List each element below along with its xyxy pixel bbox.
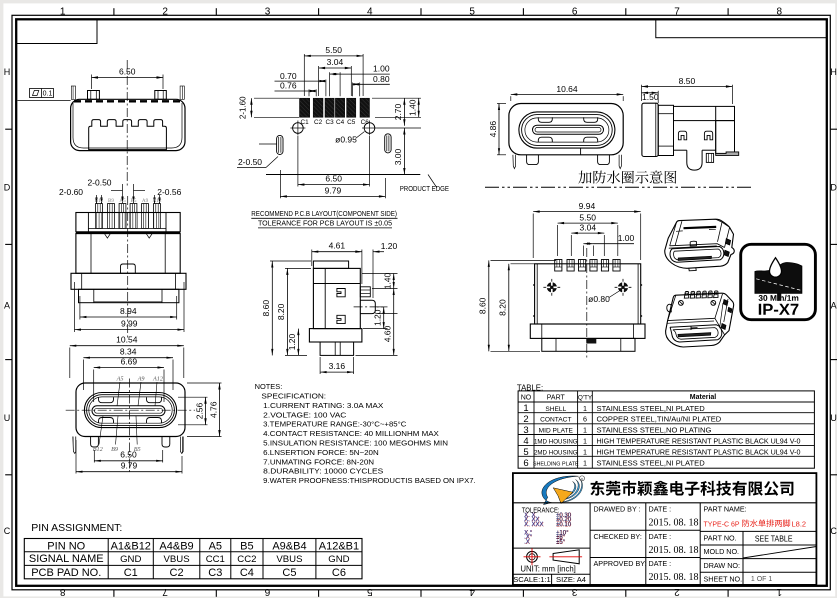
svg-text:Material: Material (690, 394, 717, 401)
svg-text:9.94: 9.94 (579, 201, 596, 211)
svg-text:GND: GND (328, 554, 349, 565)
svg-text:8.20: 8.20 (498, 299, 508, 316)
svg-text:1.CURRENT RATING: 3.0A MAX: 1.CURRENT RATING: 3.0A MAX (263, 403, 384, 410)
svg-text:5.50: 5.50 (325, 45, 342, 55)
svg-text:2-0.50: 2-0.50 (238, 157, 262, 167)
svg-text:2-0.60: 2-0.60 (59, 187, 83, 197)
svg-text:A12: A12 (153, 198, 162, 204)
svg-text:SHEET NO.: SHEET NO. (704, 574, 743, 583)
svg-text:2.56: 2.56 (195, 402, 205, 419)
svg-text:4.76: 4.76 (209, 401, 219, 418)
svg-text:9.WATER PROOFNESS:THISPRODUCTI: 9.WATER PROOFNESS:THISPRODUCTIS BASED ON… (263, 478, 476, 485)
svg-text:A5: A5 (209, 540, 222, 552)
svg-text:1 OF 1: 1 OF 1 (751, 576, 773, 583)
svg-text:1.50: 1.50 (642, 92, 659, 102)
svg-text:H: H (4, 67, 11, 77)
svg-text:3: 3 (523, 425, 528, 436)
svg-text:2MD HOUSING: 2MD HOUSING (534, 449, 578, 456)
svg-text:DRAW NO:: DRAW NO: (704, 561, 740, 570)
svg-text:8.50: 8.50 (679, 76, 696, 86)
svg-text:SHELL: SHELL (545, 406, 566, 413)
svg-text:2: 2 (523, 414, 528, 425)
svg-text:APPROVED BY:: APPROVED BY: (594, 559, 647, 568)
svg-text:HIGH TEMPERATURE RESISTANT: HIGH TEMPERATURE RESISTANT PLASTIC BLACK… (597, 436, 801, 445)
svg-text:PART: PART (547, 394, 566, 401)
svg-text:4.86: 4.86 (488, 121, 498, 138)
svg-text:VBUS: VBUS (163, 554, 189, 565)
svg-text:SIGNAL NAME: SIGNAL NAME (29, 553, 104, 565)
svg-text:DATE :: DATE : (649, 559, 672, 568)
svg-text:CONTACT: CONTACT (540, 417, 571, 424)
svg-text:6: 6 (523, 458, 528, 469)
svg-text:B5: B5 (240, 540, 253, 552)
svg-text:C5: C5 (282, 567, 296, 579)
svg-text:C: C (4, 526, 11, 536)
svg-text:8.60: 8.60 (261, 300, 271, 317)
svg-text:2015. 08. 18: 2015. 08. 18 (649, 545, 699, 556)
svg-text:PRODUCT EDGE: PRODUCT EDGE (400, 184, 449, 193)
svg-text:1.00: 1.00 (618, 233, 635, 243)
svg-text:4: 4 (469, 586, 475, 597)
svg-text:PCB PAD NO.: PCB PAD NO. (31, 567, 101, 579)
svg-text:1.40: 1.40 (383, 272, 393, 289)
svg-text:3: 3 (265, 7, 271, 18)
svg-text:8.94: 8.94 (120, 306, 137, 316)
svg-text:10.64: 10.64 (556, 84, 578, 94)
svg-text:D: D (4, 183, 11, 193)
svg-text:A9: A9 (137, 376, 145, 383)
svg-text:1: 1 (523, 403, 528, 414)
svg-text:B5: B5 (130, 198, 136, 204)
svg-text:CC2: CC2 (237, 554, 256, 565)
svg-text:MOLD NO.: MOLD NO. (704, 547, 740, 556)
svg-text:B9: B9 (108, 198, 114, 204)
svg-text:C4: C4 (336, 119, 345, 126)
svg-text:6: 6 (264, 586, 270, 597)
svg-text:8.34: 8.34 (120, 347, 137, 357)
svg-text:PIN NO: PIN NO (47, 540, 85, 552)
svg-text:VBUS: VBUS (276, 554, 302, 565)
svg-text:PART NAME:: PART NAME: (704, 505, 747, 514)
svg-text:8.20: 8.20 (276, 303, 286, 320)
svg-text:0.76: 0.76 (280, 81, 297, 91)
svg-text:A9: A9 (142, 198, 149, 204)
svg-text:4: 4 (523, 436, 528, 447)
svg-text:5.INSULATION RESISTANCE: 100 M: 5.INSULATION RESISTANCE: 100 MEGOHMS MIN (263, 441, 448, 448)
svg-text:RECOMMEND P.C.B LAYOUT(COMPONE: RECOMMEND P.C.B LAYOUT(COMPONENT SIDE) (251, 209, 397, 218)
svg-text:A12: A12 (152, 376, 163, 383)
svg-text:4.CONTACT RESISTANCE: 40 MILLI: 4.CONTACT RESISTANCE: 40 MILLIONHM MAX (263, 431, 439, 438)
svg-text:2.70: 2.70 (393, 103, 403, 120)
svg-text:2015. 08. 18: 2015. 08. 18 (649, 572, 699, 583)
svg-text:±0.10: ±0.10 (556, 522, 572, 528)
svg-text:C: C (830, 526, 837, 536)
svg-text:Q'TY: Q'TY (578, 394, 593, 401)
svg-text:8.60: 8.60 (478, 297, 488, 314)
svg-text:SCALE:1:1: SCALE:1:1 (513, 575, 551, 584)
svg-text:4.60: 4.60 (383, 325, 393, 342)
svg-text:C2: C2 (170, 567, 184, 579)
svg-text:1: 1 (583, 404, 587, 413)
svg-text:2: 2 (162, 7, 168, 18)
svg-text:7: 7 (162, 586, 168, 597)
svg-text:C6: C6 (332, 567, 346, 579)
svg-text:6.50: 6.50 (325, 174, 342, 184)
svg-text:6.LNSERTION FORCE: 5N~20N: 6.LNSERTION FORCE: 5N~20N (263, 450, 379, 457)
svg-text:STAINLESS STEEL,NI PLATED: STAINLESS STEEL,NI PLATED (597, 404, 706, 413)
svg-text:A5: A5 (119, 198, 126, 204)
svg-text:CC1: CC1 (206, 554, 225, 565)
svg-text:1.20: 1.20 (381, 241, 398, 251)
svg-text:5: 5 (469, 7, 475, 18)
svg-text:C3: C3 (326, 119, 335, 126)
svg-text:8.DURABILITY: 10000 CYCLES: 8.DURABILITY: 10000 CYCLES (263, 469, 384, 476)
svg-text:GND: GND (120, 554, 141, 565)
svg-text:A9&B4: A9&B4 (272, 540, 306, 552)
svg-text:4.61: 4.61 (329, 241, 346, 251)
svg-text:B9: B9 (111, 446, 118, 453)
svg-text:DRAWED BY :: DRAWED BY : (594, 505, 641, 514)
svg-text:1: 1 (583, 459, 587, 468)
svg-text:PIN ASSIGNMENT:: PIN ASSIGNMENT: (31, 522, 122, 534)
svg-text:5: 5 (367, 586, 373, 597)
svg-text:3.00: 3.00 (393, 148, 403, 165)
svg-text:2-0.56: 2-0.56 (157, 187, 181, 197)
svg-text:C5: C5 (347, 119, 356, 126)
svg-text:9.99: 9.99 (121, 318, 138, 328)
svg-text:1: 1 (583, 426, 587, 435)
svg-text:A: A (4, 301, 10, 311)
svg-text:6: 6 (583, 415, 587, 424)
svg-text:B12: B12 (95, 198, 104, 204)
svg-text:SIZE: A4: SIZE: A4 (556, 575, 586, 584)
svg-text:7.UNMATING FORCE: 8N-20N: 7.UNMATING FORCE: 8N-20N (263, 459, 374, 466)
svg-text:C1: C1 (124, 567, 138, 579)
svg-text:TYPE-C 6P: TYPE-C 6P (704, 519, 740, 528)
svg-text:1: 1 (583, 436, 587, 445)
svg-text:1MD HOUSING: 1MD HOUSING (534, 438, 578, 445)
svg-text:C3: C3 (208, 567, 222, 579)
svg-text:±5°: ±5° (556, 539, 566, 545)
svg-text:C4: C4 (240, 567, 254, 579)
svg-text:PART NO.: PART NO. (704, 534, 737, 543)
svg-text:2-0.50: 2-0.50 (87, 178, 111, 188)
svg-text:3.16: 3.16 (329, 361, 346, 371)
svg-text:A1&B12: A1&B12 (111, 540, 151, 552)
svg-text:D: D (830, 183, 837, 193)
svg-text:STAINLESS STEEL,NO PLATING: STAINLESS STEEL,NO PLATING (597, 426, 712, 435)
svg-text:3.04: 3.04 (580, 222, 597, 232)
svg-text:1.00: 1.00 (373, 63, 390, 73)
svg-text:NO: NO (521, 394, 532, 401)
svg-text:3.04: 3.04 (327, 57, 344, 67)
svg-text:9.79: 9.79 (325, 185, 342, 195)
svg-text:6.50: 6.50 (120, 450, 137, 460)
svg-text:1.20: 1.20 (287, 333, 297, 350)
svg-text:1.20: 1.20 (373, 309, 383, 326)
svg-text:3: 3 (571, 586, 577, 597)
svg-text:1: 1 (60, 7, 66, 18)
svg-text:L8.2: L8.2 (792, 519, 807, 528)
svg-text:NOTES:: NOTES: (255, 384, 283, 391)
svg-text:UNIT: mm [inch]: UNIT: mm [inch] (520, 564, 575, 573)
svg-text:4: 4 (367, 7, 373, 18)
svg-text:0.70: 0.70 (280, 71, 297, 81)
svg-text:U: U (830, 413, 837, 423)
svg-text:1: 1 (583, 447, 587, 456)
svg-text:8: 8 (777, 7, 783, 18)
svg-text:SPECIFICATION:: SPECIFICATION: (261, 394, 326, 401)
svg-text:U: U (4, 413, 11, 423)
svg-text:SHELDING PLATE: SHELDING PLATE (533, 462, 579, 468)
svg-text:HIGH TEMPERATURE RESISTANT: HIGH TEMPERATURE RESISTANT PLASTIC BLACK… (597, 447, 801, 456)
svg-text:2.VOLTAGE: 100 VAC: 2.VOLTAGE: 100 VAC (263, 412, 346, 419)
svg-text:DATE :: DATE : (649, 505, 672, 514)
svg-text:5: 5 (523, 447, 528, 458)
svg-text:COPPER STEEL,TIN/Au/NI PLATE: COPPER STEEL,TIN/Au/NI PLATED (597, 415, 722, 424)
svg-text:CHECKED BY:: CHECKED BY: (594, 532, 642, 541)
svg-text:7: 7 (674, 7, 680, 18)
svg-text:2-1.60: 2-1.60 (239, 96, 248, 119)
svg-text:3.TEMPERATURE RANGE:-30°C~+85°: 3.TEMPERATURE RANGE:-30°C~+85°C (263, 421, 406, 429)
svg-text:STAINLESS STEEL,NI PLATED: STAINLESS STEEL,NI PLATED (597, 459, 706, 468)
svg-text:TOLERANCE FOR PCB LAYOUT IS ±0: TOLERANCE FOR PCB LAYOUT IS ±0.05 (258, 219, 392, 228)
svg-text:1.40: 1.40 (408, 99, 418, 116)
svg-text:10.54: 10.54 (116, 335, 138, 345)
svg-text:0.1: 0.1 (43, 91, 53, 98)
svg-text:DATE :: DATE : (649, 532, 672, 541)
svg-text:SEE TABLE: SEE TABLE (755, 534, 793, 544)
svg-text:5.50: 5.50 (579, 212, 596, 222)
svg-text:.X: .X (524, 539, 530, 545)
svg-text:6: 6 (572, 7, 578, 18)
svg-text:1: 1 (776, 586, 782, 597)
svg-text:X. XXX: X. XXX (524, 522, 543, 528)
svg-text:A: A (831, 301, 837, 311)
svg-text:MID PLATE: MID PLATE (539, 428, 574, 435)
svg-text:8: 8 (59, 586, 65, 597)
svg-text:0.80: 0.80 (373, 74, 390, 84)
svg-text:9.79: 9.79 (121, 461, 138, 471)
svg-text:2: 2 (674, 586, 680, 597)
svg-text:H: H (830, 67, 837, 77)
svg-text:ø0.95: ø0.95 (335, 135, 357, 145)
svg-text:ø0.80: ø0.80 (588, 294, 610, 304)
svg-text:C2: C2 (314, 119, 323, 126)
svg-text:2015. 08. 18: 2015. 08. 18 (649, 518, 699, 529)
svg-text:6.50: 6.50 (119, 66, 136, 76)
svg-text:6.69: 6.69 (121, 356, 138, 366)
svg-text:A12&B1: A12&B1 (319, 540, 359, 552)
svg-text:A4&B9: A4&B9 (159, 540, 193, 552)
svg-text:A5: A5 (116, 376, 124, 383)
